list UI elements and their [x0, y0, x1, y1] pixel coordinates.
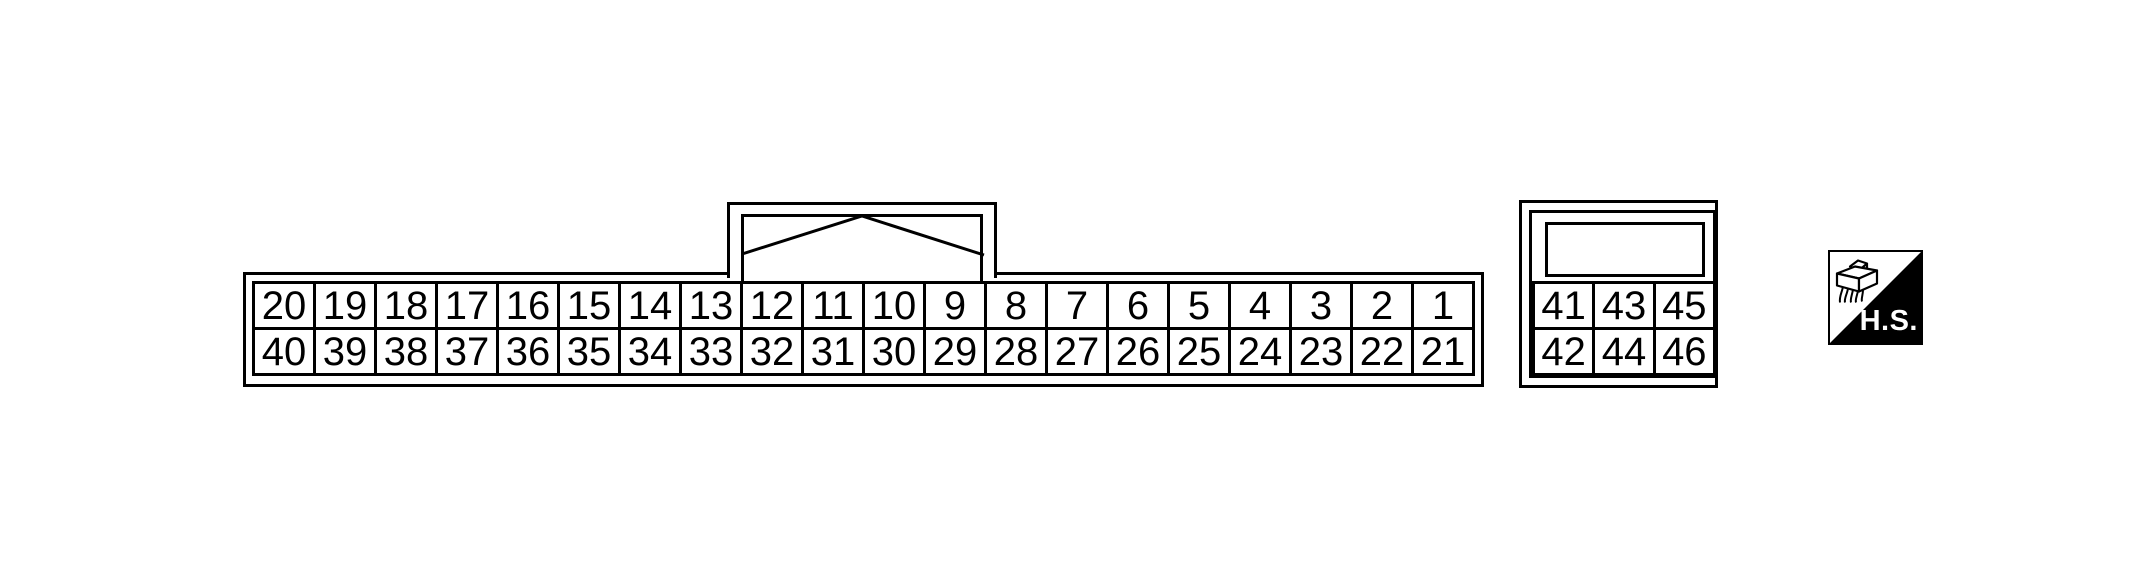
- pin-cell-35: 35: [560, 330, 618, 373]
- pin-cell-11: 11: [804, 284, 862, 327]
- pin-cell-18: 18: [377, 284, 435, 327]
- pin-cell-16: 16: [499, 284, 557, 327]
- pin-cell-8: 8: [987, 284, 1045, 327]
- pin-cell-7: 7: [1048, 284, 1106, 327]
- main-connector-pin-grid: 20 19 18 17 16 15 14 13 12 11 10 9 8 7 6…: [252, 281, 1475, 376]
- pin-cell-30: 30: [865, 330, 923, 373]
- pin-cell-44: 44: [1595, 330, 1652, 373]
- pin-cell-26: 26: [1109, 330, 1167, 373]
- pin-cell-1: 1: [1414, 284, 1472, 327]
- pin-cell-9: 9: [926, 284, 984, 327]
- pin-cell-34: 34: [621, 330, 679, 373]
- pin-cell-22: 22: [1353, 330, 1411, 373]
- pin-cell-40: 40: [255, 330, 313, 373]
- connector-diagram-page: { "colors": { "line": "#000000", "backgr…: [0, 0, 2130, 573]
- pin-cell-2: 2: [1353, 284, 1411, 327]
- pin-cell-17: 17: [438, 284, 496, 327]
- pin-cell-37: 37: [438, 330, 496, 373]
- pin-cell-12: 12: [743, 284, 801, 327]
- pin-cell-14: 14: [621, 284, 679, 327]
- pin-cell-6: 6: [1109, 284, 1167, 327]
- pin-cell-36: 36: [499, 330, 557, 373]
- pin-cell-15: 15: [560, 284, 618, 327]
- pin-cell-24: 24: [1231, 330, 1289, 373]
- pin-cell-19: 19: [316, 284, 374, 327]
- pin-cell-25: 25: [1170, 330, 1228, 373]
- connector-key-notch-lines: [738, 212, 988, 260]
- pin-cell-23: 23: [1292, 330, 1350, 373]
- pin-cell-13: 13: [682, 284, 740, 327]
- pin-cell-43: 43: [1595, 284, 1652, 327]
- pin-cell-33: 33: [682, 330, 740, 373]
- pin-cell-31: 31: [804, 330, 862, 373]
- pin-cell-3: 3: [1292, 284, 1350, 327]
- harness-connector-icon: [1834, 257, 1882, 304]
- pin-cell-27: 27: [1048, 330, 1106, 373]
- pin-cell-45: 45: [1656, 284, 1713, 327]
- pin-cell-46: 46: [1656, 330, 1713, 373]
- pin-cell-32: 32: [743, 330, 801, 373]
- aux-connector-pin-grid: 41 43 45 42 44 46: [1532, 281, 1716, 376]
- pin-cell-42: 42: [1535, 330, 1592, 373]
- pin-cell-4: 4: [1231, 284, 1289, 327]
- hs-badge-label: H.S.: [1860, 307, 1918, 336]
- pin-cell-41: 41: [1535, 284, 1592, 327]
- pin-cell-39: 39: [316, 330, 374, 373]
- pin-cell-29: 29: [926, 330, 984, 373]
- pin-cell-20: 20: [255, 284, 313, 327]
- pin-cell-28: 28: [987, 330, 1045, 373]
- aux-connector-slot: [1545, 222, 1705, 277]
- pin-cell-21: 21: [1414, 330, 1472, 373]
- pin-cell-5: 5: [1170, 284, 1228, 327]
- hs-badge: H.S.: [1828, 250, 1923, 345]
- pin-cell-38: 38: [377, 330, 435, 373]
- pin-cell-10: 10: [865, 284, 923, 327]
